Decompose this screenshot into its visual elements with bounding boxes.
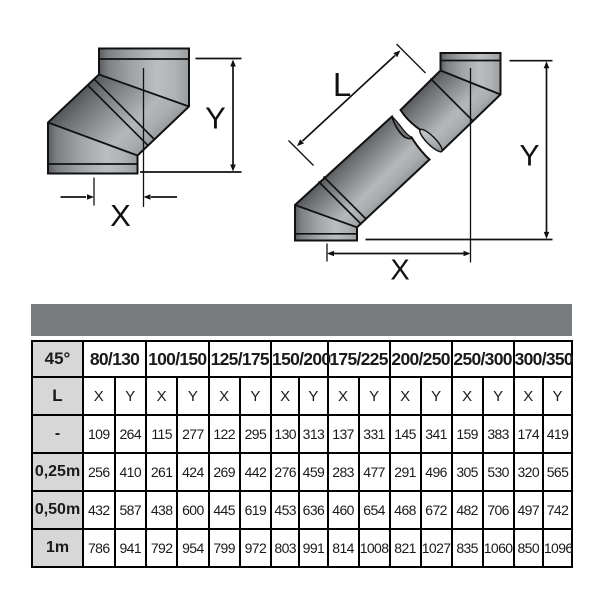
svg-text:X: X: [110, 198, 131, 233]
svg-text:Y: Y: [205, 101, 226, 136]
svg-text:X: X: [390, 255, 409, 287]
svg-text:L: L: [333, 66, 351, 103]
svg-text:Y: Y: [519, 140, 539, 173]
